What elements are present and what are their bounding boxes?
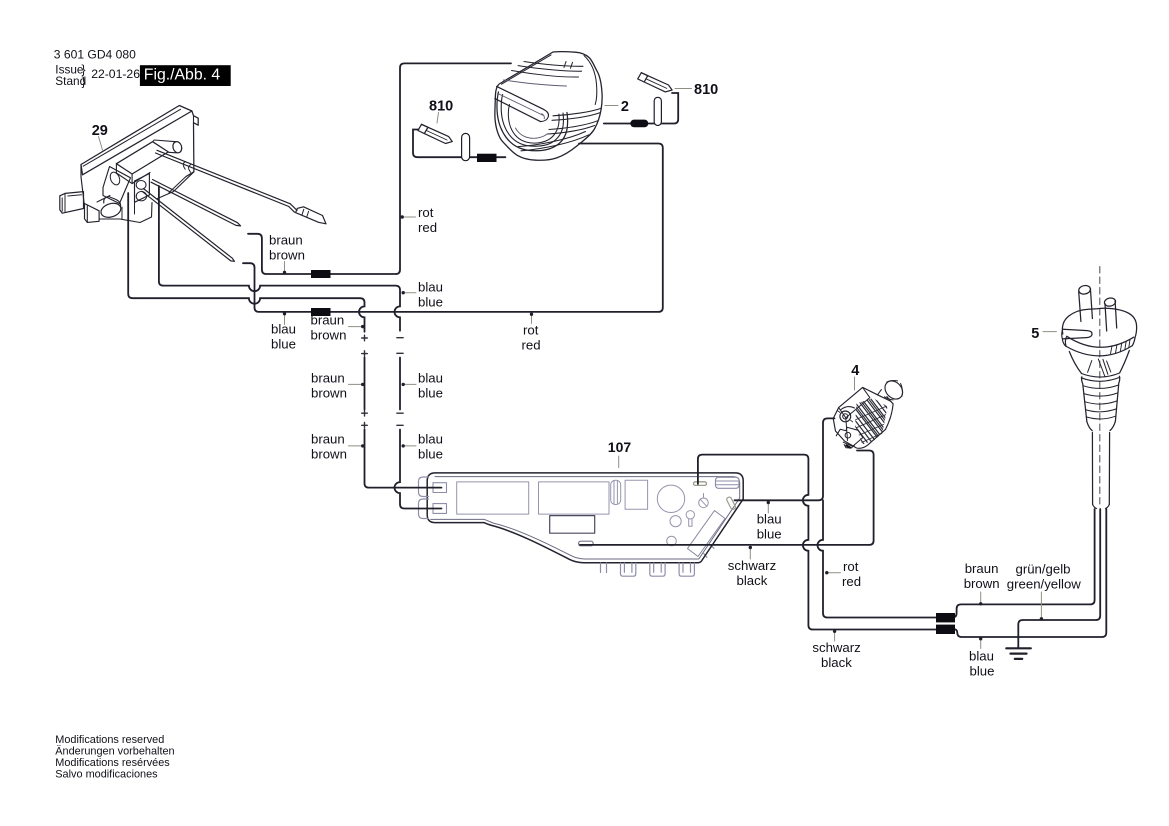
svg-text:brown: brown [311,328,347,343]
svg-text:3 601 GD4 080: 3 601 GD4 080 [54,47,136,61]
svg-text:braun: braun [269,233,303,248]
svg-text:810: 810 [429,99,453,115]
svg-text:2: 2 [621,99,629,115]
svg-text:blue: blue [418,386,443,401]
svg-text:brown: brown [311,386,347,401]
svg-text:braun: braun [965,561,999,576]
svg-text:rot: rot [843,559,859,574]
svg-text:Modifications reserved: Modifications reserved [55,734,164,746]
svg-text:blau: blau [757,512,782,527]
svg-text:blau: blau [418,280,443,295]
svg-text:blau: blau [418,432,443,447]
svg-text:blau: blau [418,371,443,386]
svg-text:brown: brown [964,576,1000,591]
svg-text:brown: brown [311,447,347,462]
svg-text:4: 4 [851,363,859,379]
svg-text:red: red [418,220,437,235]
svg-text:schwarz: schwarz [812,640,860,655]
svg-text:}: } [82,74,86,88]
svg-text:29: 29 [92,123,108,139]
svg-text:blue: blue [271,337,296,352]
svg-text:blau: blau [969,648,994,663]
svg-text:grün/gelb: grün/gelb [1016,562,1071,577]
svg-text:rot: rot [418,205,434,220]
svg-text:107: 107 [608,439,632,455]
svg-text:Änderungen vorbehalten: Änderungen vorbehalten [55,745,174,757]
svg-text:blue: blue [970,663,995,678]
svg-text:5: 5 [1031,326,1039,342]
svg-text:22-01-26: 22-01-26 [91,67,140,81]
svg-text:rot: rot [523,323,539,338]
svg-text:810: 810 [694,82,718,98]
svg-text:black: black [821,655,852,670]
svg-text:red: red [522,338,541,353]
svg-text:red: red [842,574,861,589]
svg-text:blue: blue [757,527,782,542]
svg-text:green/yellow: green/yellow [1007,577,1082,592]
svg-text:braun: braun [311,432,345,447]
svg-text:Modifications resérvées: Modifications resérvées [55,757,170,769]
svg-text:brown: brown [269,248,305,263]
svg-text:braun: braun [311,313,345,328]
svg-text:blue: blue [418,447,443,462]
svg-text:black: black [737,573,768,588]
svg-text:schwarz: schwarz [728,558,776,573]
svg-text:Salvo modificaciones: Salvo modificaciones [55,769,158,781]
svg-text:braun: braun [311,371,345,386]
svg-text:blue: blue [418,295,443,310]
svg-text:Fig./Abb. 4: Fig./Abb. 4 [144,67,221,84]
svg-text:blau: blau [271,322,296,337]
